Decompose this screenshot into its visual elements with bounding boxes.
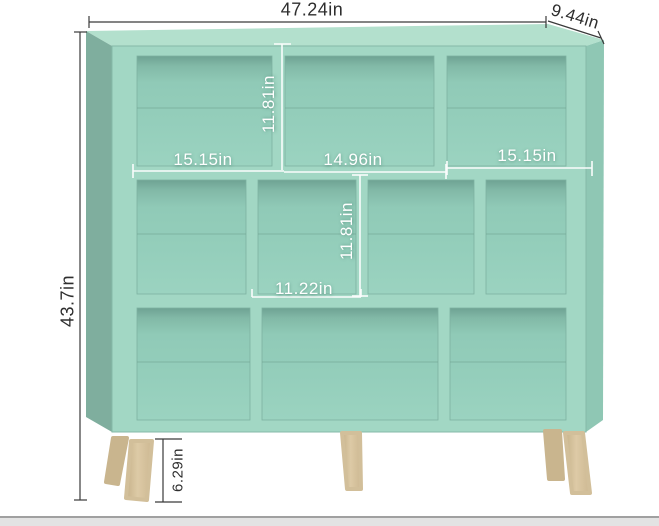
dimension-label-top-cube-height: 11.81in: [259, 75, 279, 133]
leg-left-back: [106, 438, 127, 484]
shelf-top-surface: [86, 24, 604, 46]
shelf-left-side-panel: [86, 31, 112, 432]
bookshelf-illustration: [0, 0, 659, 526]
leg-right-back: [545, 431, 563, 479]
shelf-right-side-panel: [586, 40, 604, 432]
leg-right-front: [565, 433, 590, 493]
dimension-label-top-right-cube-width: 15.15in: [497, 146, 556, 166]
dimension-label-middle-cube-height: 11.81in: [337, 202, 357, 260]
page-bottom-divider: [0, 516, 659, 526]
dimension-label-top-middle-cube-width: 14.96in: [323, 150, 382, 170]
dimension-label-leg-height: 6.29in: [170, 448, 187, 492]
leg-left-front: [126, 441, 152, 500]
dimension-label-overall-width: 47.24in: [281, 0, 344, 21]
dimension-label-overall-height: 43.7in: [58, 275, 79, 327]
product-dimension-image: 47.24in 9.44in 43.7in 11.81in 15.15in 14…: [0, 0, 659, 526]
dimension-label-top-left-cube-width: 15.15in: [173, 150, 232, 170]
dimension-label-middle-cube-width: 11.22in: [275, 279, 333, 299]
leg-center: [342, 433, 361, 489]
cubby-row-bottom: [137, 308, 566, 420]
